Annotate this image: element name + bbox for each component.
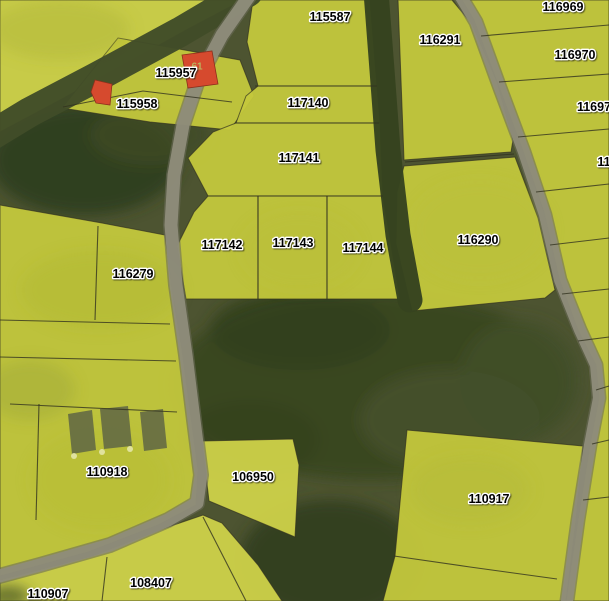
parcel-label-116279: 116279 (112, 267, 153, 281)
parcel-label-11: 11 (597, 155, 609, 169)
parcel-label-115958: 115958 (116, 97, 157, 111)
parcel-label-115587: 115587 (309, 10, 350, 24)
cadastral-map[interactable]: 6111558711629111696911697011697111159571… (0, 0, 609, 601)
parcel-label-108407: 108407 (130, 576, 172, 590)
terrain-patch (410, 180, 550, 280)
map-viewport: 6111558711629111696911697011697111159571… (0, 0, 609, 601)
parcel-label-117141: 117141 (278, 151, 319, 165)
farm-structure (100, 406, 132, 449)
parcel-label-117142: 117142 (201, 238, 242, 252)
farm-structure (140, 409, 167, 451)
forest-patch (460, 320, 580, 440)
parcel-label-117143: 117143 (272, 236, 313, 250)
terrain-patch (410, 455, 530, 525)
parcel-label-117144: 117144 (342, 241, 383, 255)
parcel-label-116969: 116969 (542, 0, 583, 14)
structure-dot (127, 446, 133, 452)
parcel-label-106950: 106950 (232, 470, 274, 484)
parcel-label-116970: 116970 (554, 48, 595, 62)
structure-dot (71, 453, 77, 459)
farm-structure (68, 410, 96, 454)
parcel-label-110907: 110907 (27, 587, 68, 601)
parcel-label-116290: 116290 (457, 233, 498, 247)
parcel-label-110917: 110917 (468, 492, 509, 506)
forest-patch (210, 290, 390, 370)
structure-dot (99, 449, 105, 455)
parcel-label-11697: 11697 (577, 100, 609, 114)
parcel-label-115957: 115957 (155, 66, 196, 80)
parcel-label-110918: 110918 (86, 465, 127, 479)
parcel-label-117140: 117140 (287, 96, 328, 110)
parcel-label-116291: 116291 (419, 33, 460, 47)
terrain-patch (20, 250, 180, 330)
